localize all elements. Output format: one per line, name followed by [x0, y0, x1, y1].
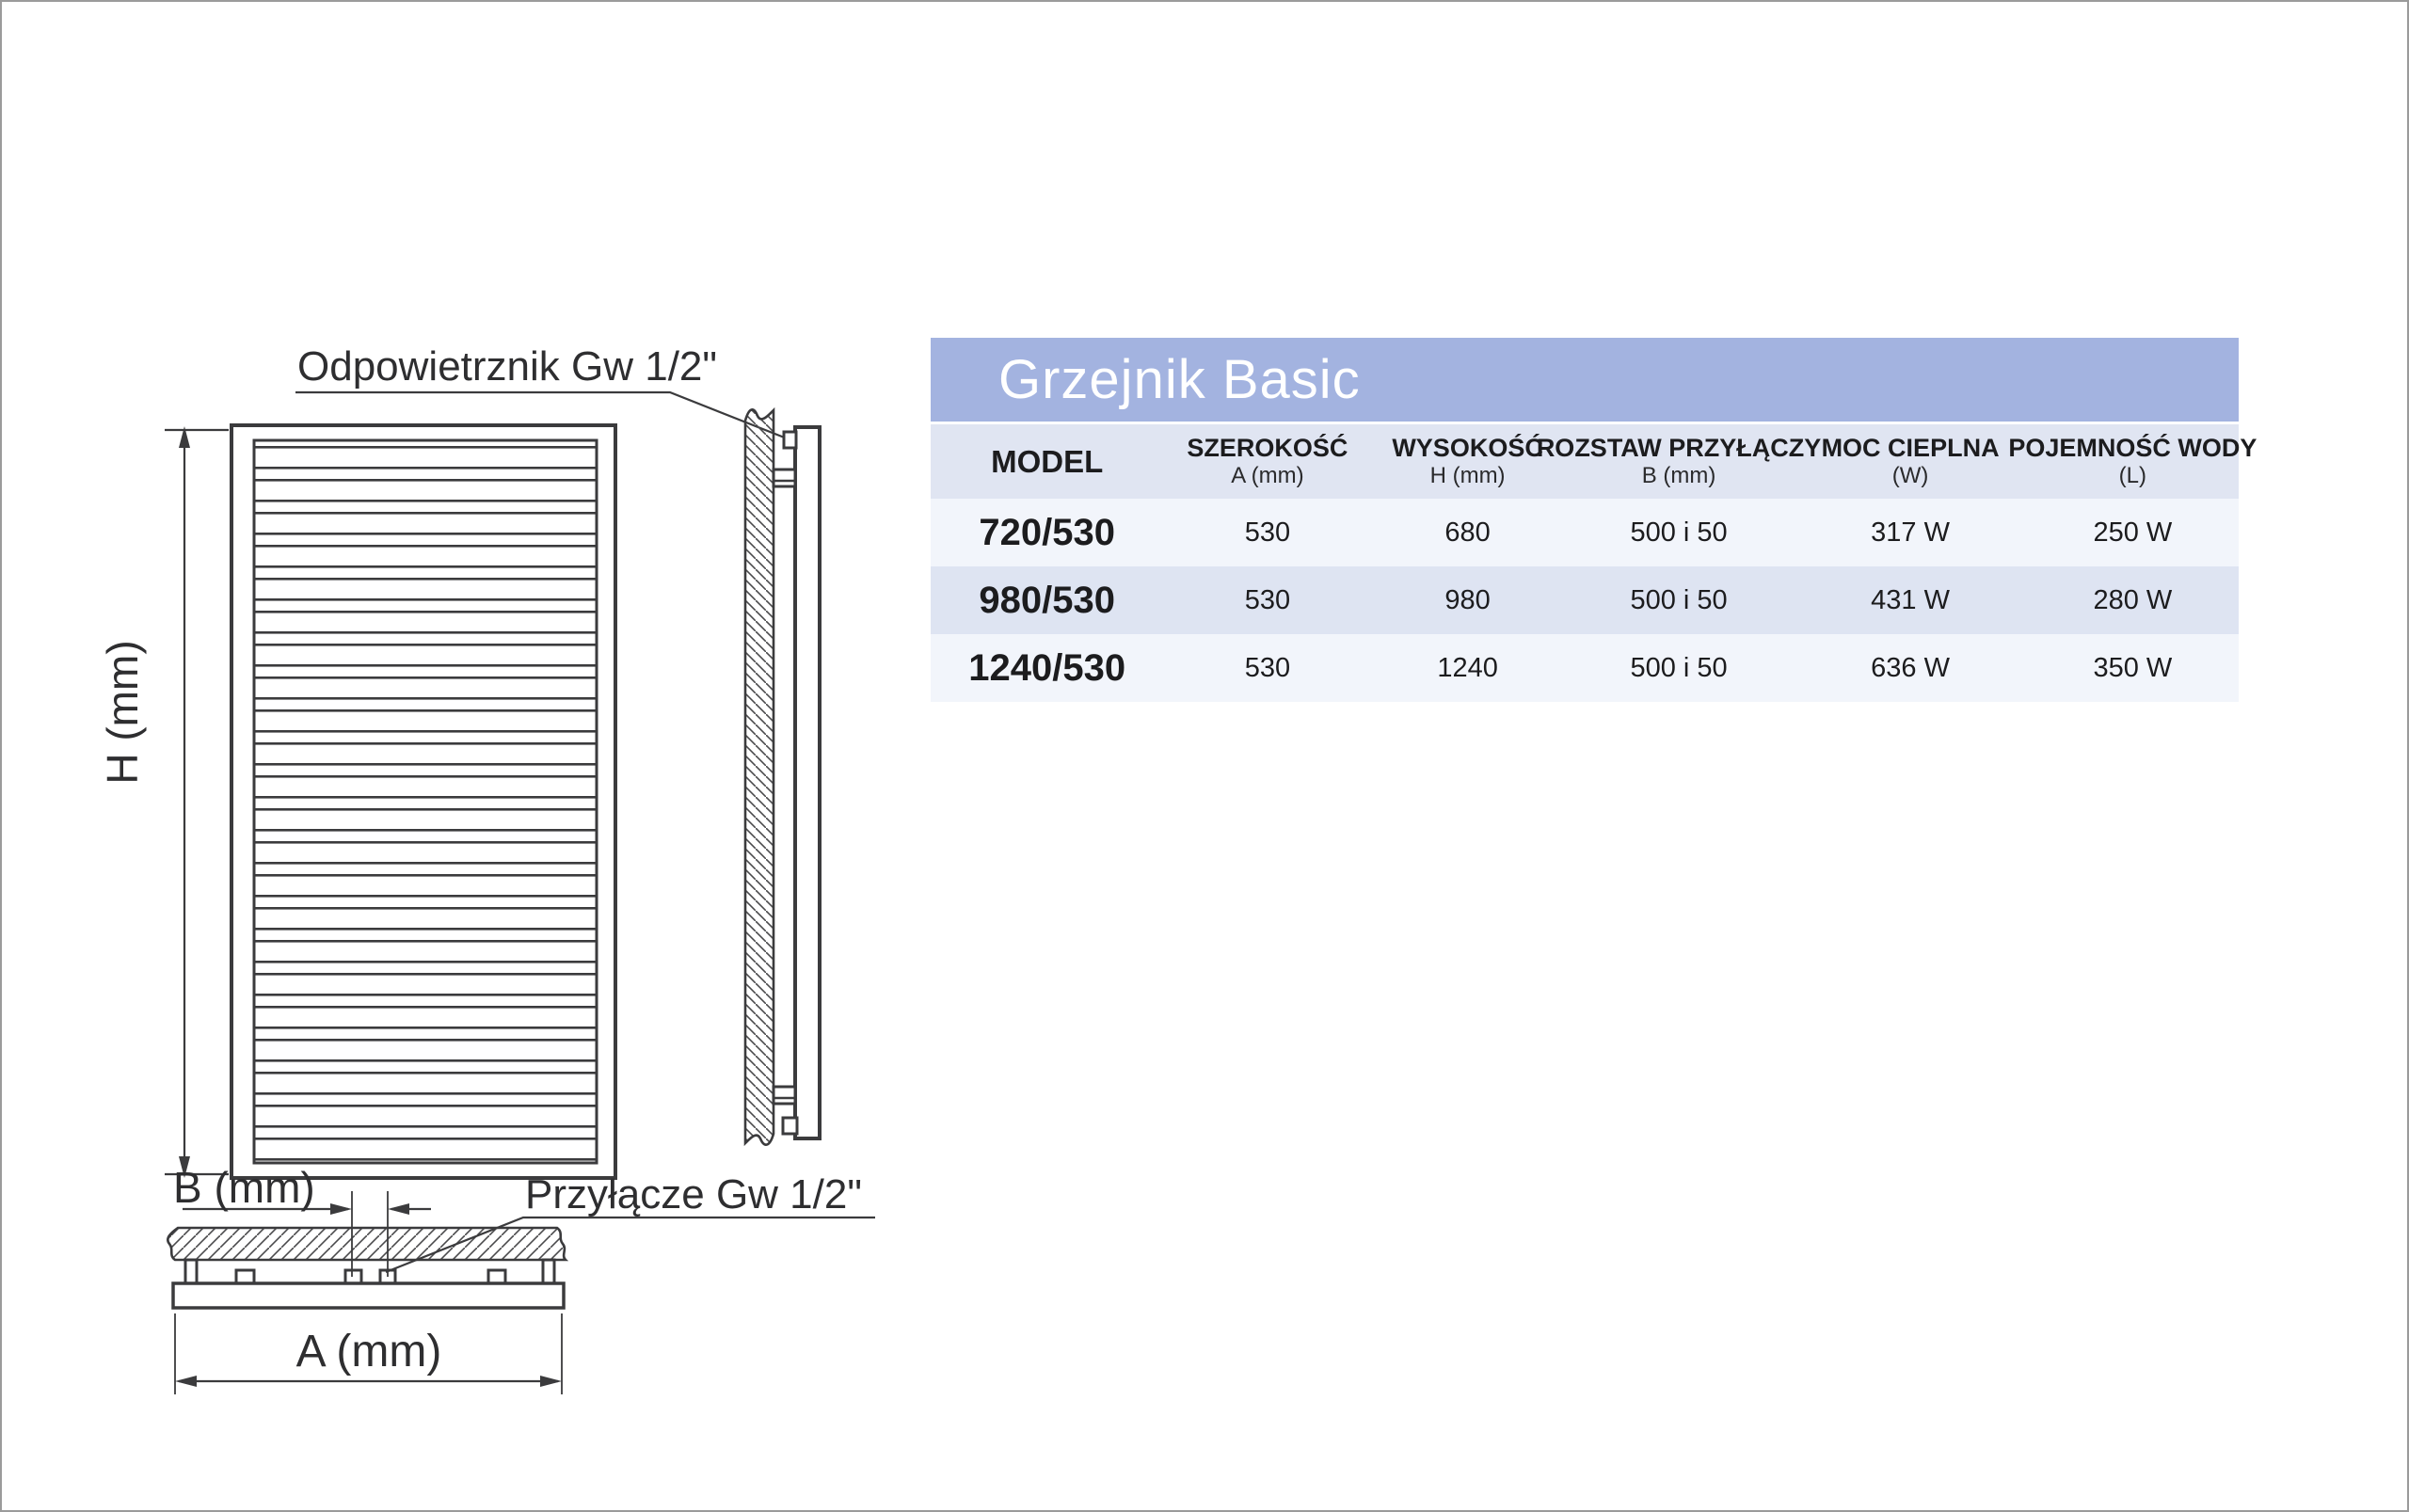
cell-wysokosc: 680 [1371, 499, 1563, 566]
table-row: 1240/530 530 1240 500 i 50 636 W 350 W [931, 634, 2239, 702]
cell-model: 720/530 [931, 499, 1163, 566]
table-row: 980/530 530 980 500 i 50 431 W 280 W [931, 566, 2239, 634]
side-view [745, 409, 820, 1144]
bottom-stub-2 [345, 1270, 361, 1283]
cell-rozstaw: 500 i 50 [1564, 634, 1795, 702]
column-header-rozstaw: ROZSTAW PRZYŁĄCZY B (mm) [1564, 424, 1795, 499]
bottom-stub-4 [488, 1270, 505, 1283]
cell-moc: 317 W [1794, 499, 2026, 566]
cell-szerokosc: 530 [1163, 566, 1371, 634]
bottom-bar [173, 1283, 564, 1308]
height-dimension [165, 426, 229, 1178]
column-header-sub: (W) [1892, 463, 1929, 489]
table-row: 720/530 530 680 500 i 50 317 W 250 W [931, 499, 2239, 566]
spacing-dim-label: B (mm) [173, 1163, 315, 1212]
side-bottom-bracket [774, 1087, 795, 1104]
bottom-post-left [185, 1260, 197, 1283]
column-header-pojemnosc: POJEMNOŚĆ WODY (L) [2027, 424, 2239, 499]
cell-moc: 636 W [1794, 634, 2026, 702]
cell-szerokosc: 530 [1163, 499, 1371, 566]
column-header-sub: B (mm) [1642, 463, 1716, 489]
side-wall-section [745, 409, 774, 1144]
front-view [231, 425, 615, 1178]
bottom-view [168, 1228, 566, 1308]
arrow-right-icon [330, 1203, 352, 1215]
front-slats [254, 440, 597, 1163]
cell-wysokosc: 980 [1371, 566, 1563, 634]
column-header-label: MODEL [991, 444, 1103, 480]
column-header-label: MOC CIEPLNA [1822, 434, 2000, 463]
side-bottom-connection [783, 1118, 797, 1134]
column-header-label: SZEROKOŚĆ [1187, 434, 1348, 463]
cell-rozstaw: 500 i 50 [1564, 499, 1795, 566]
table-header-row: MODEL SZEROKOŚĆ A (mm) WYSOKOŚĆ H (mm) R… [931, 424, 2239, 499]
side-top-bracket [774, 470, 795, 486]
side-radiator-profile [795, 427, 820, 1138]
bottom-stub-1 [236, 1270, 254, 1283]
cell-model: 980/530 [931, 566, 1163, 634]
spec-table: Grzejnik Basic MODEL SZEROKOŚĆ A (mm) WY… [931, 338, 2239, 702]
column-header-sub: A (mm) [1231, 463, 1303, 489]
column-header-wysokosc: WYSOKOŚĆ H (mm) [1371, 424, 1563, 499]
cell-pojemnosc: 350 W [2027, 634, 2239, 702]
column-header-moc: MOC CIEPLNA (W) [1794, 424, 2026, 499]
arrow-left-icon [388, 1203, 409, 1215]
column-header-label: POJEMNOŚĆ WODY [2008, 434, 2257, 463]
cell-moc: 431 W [1794, 566, 2026, 634]
air-vent-label: Odpowietrznik Gw 1/2" [297, 343, 717, 390]
column-header-sub: H (mm) [1430, 463, 1506, 489]
height-dim-label: H (mm) [98, 640, 147, 784]
column-header-model: MODEL [931, 424, 1163, 499]
bottom-post-right [543, 1260, 554, 1283]
cell-rozstaw: 500 i 50 [1564, 566, 1795, 634]
side-air-vent [784, 432, 796, 448]
column-header-sub: (L) [2119, 463, 2146, 489]
arrow-left-icon [175, 1376, 197, 1387]
cell-wysokosc: 1240 [1371, 634, 1563, 702]
cell-szerokosc: 530 [1163, 634, 1371, 702]
width-dim-label: A (mm) [296, 1327, 442, 1377]
column-header-label: ROZSTAW PRZYŁĄCZY [1537, 434, 1821, 463]
connection-label: Przyłącze Gw 1/2" [525, 1171, 862, 1218]
column-header-label: WYSOKOŚĆ [1392, 434, 1543, 463]
column-header-szerokosc: SZEROKOŚĆ A (mm) [1163, 424, 1371, 499]
cell-pojemnosc: 280 W [2027, 566, 2239, 634]
radiator-technical-drawing: H (mm) Odpowietrznik Gw 1/2" B (mm) Przy… [0, 0, 2409, 1512]
cell-model: 1240/530 [931, 634, 1163, 702]
bottom-wall-section [168, 1228, 566, 1260]
cell-pojemnosc: 250 W [2027, 499, 2239, 566]
table-title: Grzejnik Basic [931, 338, 2239, 424]
arrow-right-icon [540, 1376, 562, 1387]
